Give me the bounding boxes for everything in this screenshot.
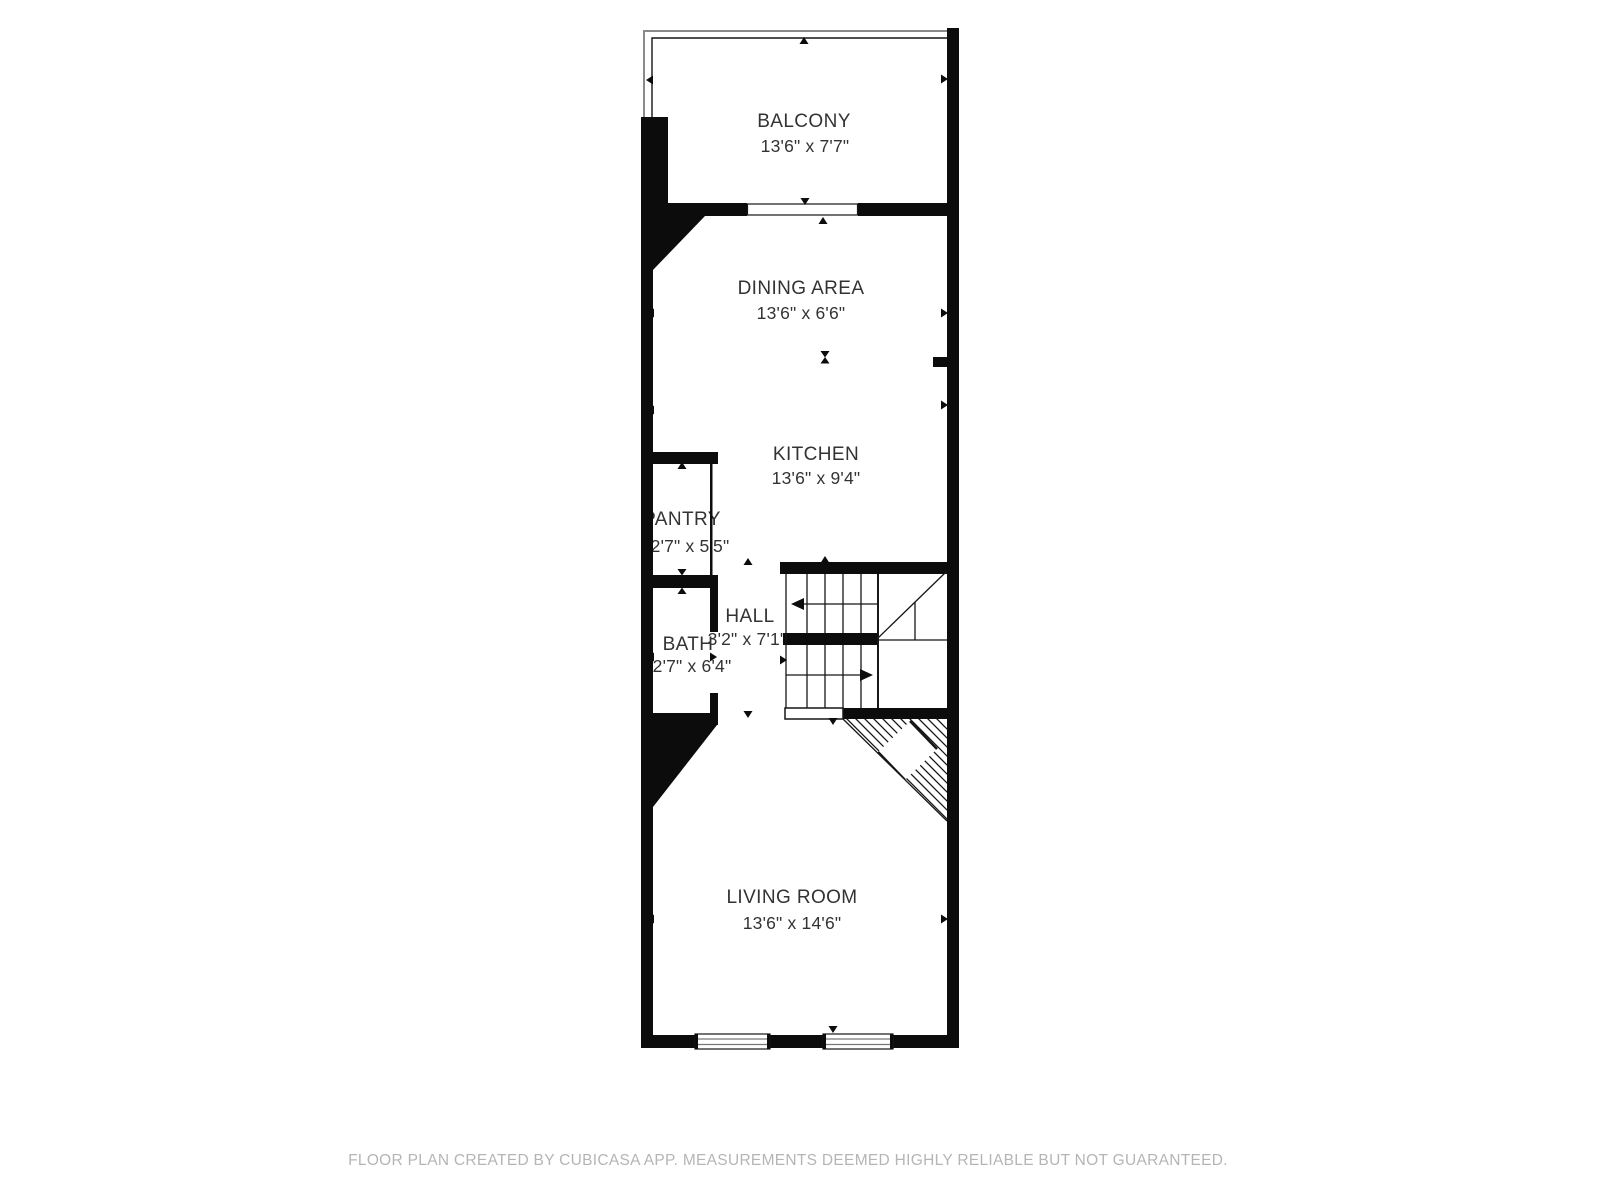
kitchen-dimensions: 13'6" x 9'4" (772, 468, 861, 489)
living-room-dimensions: 13'6" x 14'6" (743, 913, 842, 934)
dining-area-dimensions: 13'6" x 6'6" (757, 303, 846, 324)
footer-disclaimer: FLOOR PLAN CREATED BY CUBICASA APP. MEAS… (348, 1152, 1228, 1170)
balcony-dimensions: 13'6" x 7'7" (761, 136, 850, 157)
bath-label: BATH (663, 634, 714, 657)
kitchen-label: KITCHEN (773, 444, 859, 467)
room-labels: BALCONY 13'6" x 7'7" DINING AREA 13'6" x… (0, 0, 1600, 1200)
hall-dimensions: 3'2" x 7'1" (708, 629, 787, 650)
bath-dimensions: 2'7" x 6'4" (653, 656, 732, 677)
pantry-dimensions: 2'7" x 5'5" (651, 536, 730, 557)
dining-area-label: DINING AREA (738, 278, 865, 301)
hall-label: HALL (725, 606, 774, 629)
floor-plan-canvas: BALCONY 13'6" x 7'7" DINING AREA 13'6" x… (0, 0, 1600, 1200)
balcony-label: BALCONY (757, 111, 851, 134)
living-room-label: LIVING ROOM (726, 887, 857, 910)
pantry-label: PANTRY (643, 509, 721, 532)
